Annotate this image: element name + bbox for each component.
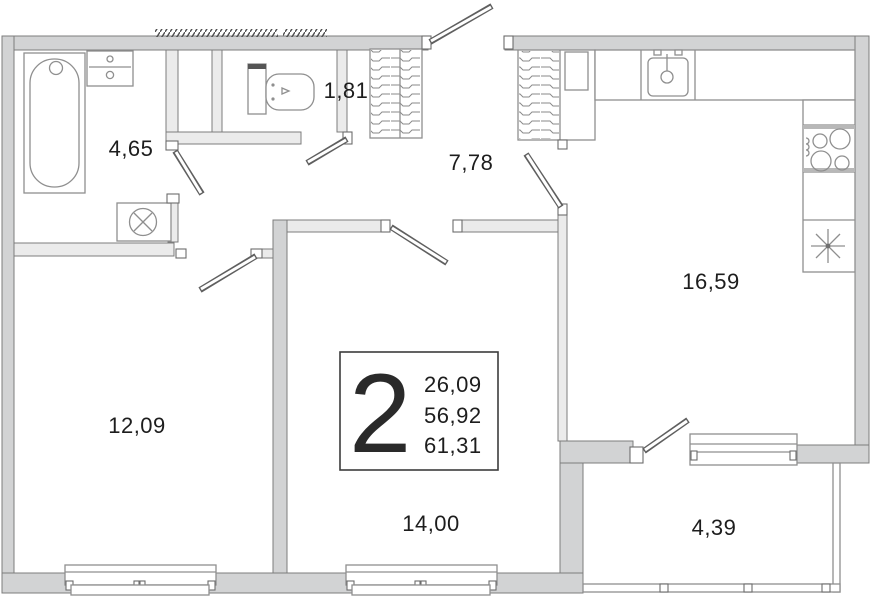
info-living-area: 26,09 bbox=[424, 372, 482, 397]
exterior-walls bbox=[2, 29, 869, 593]
floor-plan: 4,65 1,81 7,78 16,59 12,09 14,00 4,39 2 … bbox=[0, 0, 871, 600]
wall-top-right bbox=[505, 36, 869, 50]
info-area: 56,92 bbox=[424, 403, 482, 428]
balcony-glazing-bottom bbox=[583, 584, 840, 592]
floor-plan-svg: 4,65 1,81 7,78 16,59 12,09 14,00 4,39 2 … bbox=[0, 0, 871, 600]
apartment-info-box: 2 26,09 56,92 61,31 bbox=[340, 351, 498, 476]
balcony-door bbox=[630, 420, 688, 463]
bathtub-icon bbox=[24, 53, 85, 193]
room-label-bathroom: 4,65 bbox=[109, 136, 154, 161]
wall-kitchen-balcony bbox=[797, 445, 869, 463]
fridge-star-icon bbox=[811, 229, 845, 263]
wardrobe-hall bbox=[370, 49, 422, 138]
window-living bbox=[346, 565, 497, 595]
window-kitchen-balcony bbox=[690, 434, 797, 465]
toilet-icon bbox=[248, 64, 314, 114]
wall-wc-bottom bbox=[166, 132, 301, 144]
wc-door bbox=[307, 132, 352, 163]
bedroom-door bbox=[176, 249, 262, 290]
room-label-hallway: 7,78 bbox=[449, 150, 494, 175]
shaft-hatch-strip-2 bbox=[283, 29, 327, 37]
wall-balcony-horizontal bbox=[560, 441, 633, 463]
wall-living-top-1 bbox=[287, 220, 382, 232]
info-total-area: 61,31 bbox=[424, 433, 482, 458]
kitchen-fixtures bbox=[595, 50, 855, 272]
room-label-wc: 1,81 bbox=[324, 78, 369, 103]
vanity-sink-icon bbox=[87, 51, 133, 86]
wall-kitchen-left bbox=[558, 205, 567, 441]
room-label-living-room: 14,00 bbox=[402, 511, 460, 536]
room-label-bedroom: 12,09 bbox=[108, 413, 166, 438]
wall-left bbox=[2, 36, 14, 593]
wardrobe-kitchen bbox=[518, 50, 595, 140]
wall-wc-left bbox=[212, 50, 222, 133]
closet-compartment bbox=[565, 52, 588, 90]
wall-bathroom-right-upper bbox=[166, 50, 178, 143]
wall-bedroom-living-divider bbox=[273, 220, 287, 573]
info-room-count: 2 bbox=[349, 351, 411, 476]
living-room-door bbox=[381, 220, 462, 263]
wc-fixtures bbox=[248, 64, 314, 114]
wall-living-top-2 bbox=[461, 220, 558, 232]
window-sill bbox=[71, 585, 209, 595]
wall-bathroom-bottom bbox=[14, 243, 174, 256]
wall-top-left bbox=[2, 36, 428, 50]
balcony-right-wall bbox=[833, 463, 840, 592]
wall-right bbox=[855, 36, 869, 445]
room-label-kitchen: 16,59 bbox=[682, 269, 740, 294]
bathroom-door bbox=[166, 141, 202, 203]
window-bedroom bbox=[65, 565, 216, 595]
kitchen-counter-top bbox=[595, 50, 855, 100]
washing-machine-icon bbox=[117, 203, 171, 241]
wall-bedroom-door-stub bbox=[262, 249, 273, 258]
window-sill bbox=[352, 585, 490, 595]
entrance-door bbox=[422, 6, 513, 49]
shaft-hatch-strip bbox=[155, 29, 278, 37]
storage bbox=[370, 49, 595, 140]
kitchen-door bbox=[526, 140, 567, 215]
room-label-balcony: 4,39 bbox=[692, 515, 737, 540]
